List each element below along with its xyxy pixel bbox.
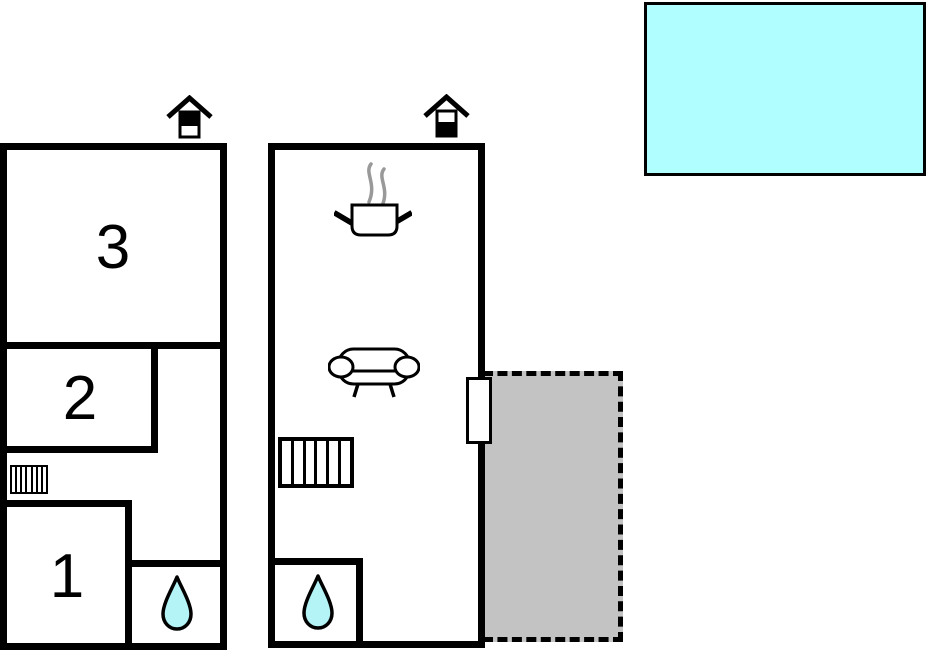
floor-plan-canvas: 3 2 1 xyxy=(0,0,930,652)
water-drop-icon xyxy=(159,573,195,633)
wall-right-bathroom-right xyxy=(356,558,363,648)
sofa-icon xyxy=(328,346,420,400)
steam-icon xyxy=(382,169,385,206)
wall-room2-bottom xyxy=(0,446,158,453)
house-icon xyxy=(166,95,213,140)
wall-right-bathroom-top xyxy=(268,558,363,565)
stairs-icon xyxy=(278,437,354,488)
door-opening xyxy=(466,377,492,444)
room-label-3: 3 xyxy=(63,205,163,290)
wall-room2-right xyxy=(151,349,158,453)
wall-left-bathroom-top xyxy=(130,560,220,567)
room-label-1: 1 xyxy=(17,535,117,619)
steam-icon xyxy=(369,164,372,202)
wall-room1-right xyxy=(125,500,132,650)
cooking-pot-icon xyxy=(334,156,412,240)
radiator-icon xyxy=(10,465,48,494)
pool-area xyxy=(644,2,926,176)
wall-room1-top xyxy=(0,500,132,507)
wall-room3-room2 xyxy=(0,342,227,349)
house-icon xyxy=(423,94,470,139)
terrace-area xyxy=(483,371,623,642)
room-label-2: 2 xyxy=(30,357,130,441)
water-drop-icon xyxy=(300,572,336,632)
